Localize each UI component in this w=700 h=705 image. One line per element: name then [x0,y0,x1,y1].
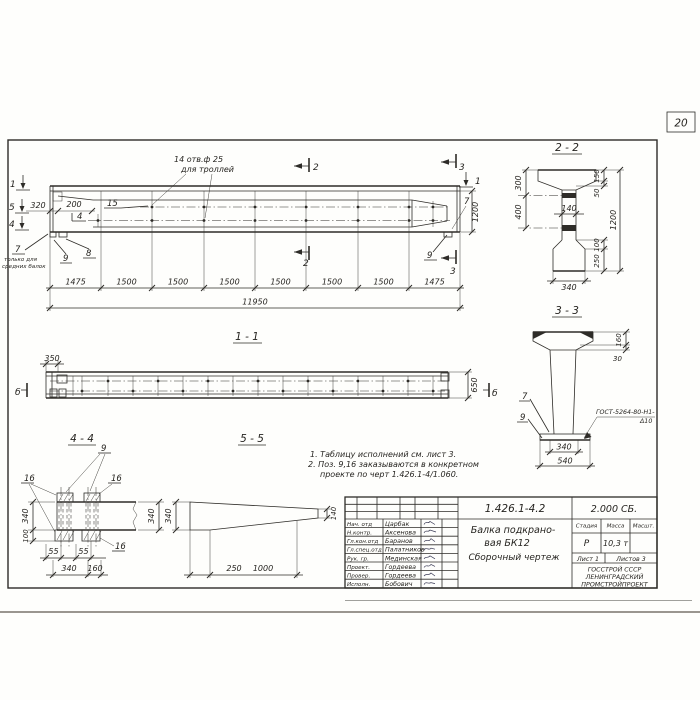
staff-rows: Нач. отд Царбак Н.контр. Аксенова Гл.кон… [347,520,425,588]
dim-160: 160 [87,564,102,573]
notes: 1. Таблицу исполнений см. лист 3. 2. Поз… [308,450,479,479]
staff-role: Рук. гр. [347,556,369,562]
weld-callout-line2: Δ10 [639,418,652,425]
staff-name: Гордеева [385,564,416,571]
drawing-sheet: 20 1475 1500 1500 1500 1500 1500 1500 14… [0,0,700,700]
svg-text:5: 5 [9,203,15,213]
note-line-3: проекте по черт 1.426.1-4/1.060. [320,470,458,479]
cut-mark-b-left: б [15,383,27,398]
dim-540: 540 [557,457,572,466]
staff-role: Н.контр. [347,531,372,537]
view-arrow-1: 1 [10,175,30,190]
cut-mark-2-bottom: 2 [294,246,309,269]
dim-160: 160 [615,333,623,347]
holes-note-line1: 14 отв.ф 25 [174,155,223,164]
dim-100: 100 [593,238,601,252]
svg-text:3: 3 [459,163,465,173]
title-block: 1.426.1-4.2 2.000 СБ. Балка подкрано- ва… [345,497,657,589]
staff-name: Бобович [385,580,413,588]
dim-spacing: 1475 [424,278,444,287]
sheets-total: Листов 3 [615,556,646,563]
pos-label-8: 8 [86,249,92,259]
pos-label-7: 7 [522,392,528,402]
col-mass: Масса [607,524,625,530]
dim-55b: 55 [78,547,88,556]
view-arrow-1-right: 1 [459,172,481,187]
section-4-4: 4 - 4 9 16 16 16 340 100 340 55 55 340 1… [21,433,164,578]
section-5-5-title: 5 - 5 [240,433,264,445]
org-line2: ЛЕНИНГРАДСКИЙ [585,572,644,581]
pos-label-9: 9 [63,254,68,264]
dim-spacing: 1500 [270,278,290,287]
cut-mark-3-top: 3 [441,154,465,173]
cut-mark-3-bottom: 3 [441,250,456,277]
pos-label-16-right: 16 [111,474,122,484]
section-4-4-title: 4 - 4 [70,433,94,445]
product-title-line3: Сборочный чертеж [468,553,560,563]
pos-label-7-right: 7 [464,197,470,207]
svg-text:2: 2 [303,259,309,269]
staff-name: Мединская [385,555,422,562]
dim-250: 250 [593,254,601,268]
section-2-2-title: 2 - 2 [555,142,579,154]
dim-30: 30 [613,355,622,363]
staff-name: Гордеева [385,573,416,580]
pos-label-16-left: 16 [24,474,35,484]
note-line-1: 1. Таблицу исполнений см. лист 3. [310,450,456,459]
svg-text:б: б [492,389,498,399]
svg-text:4: 4 [9,220,15,230]
dim-140: 140 [330,506,338,520]
weld-callout-line1: ГОСТ-5264-80-Н1- [596,409,655,416]
note-line-2: 2. Поз. 9,16 заказываются в конкретном [308,460,479,469]
stage-value: Р [584,539,590,549]
svg-text:2: 2 [313,163,319,173]
svg-text:1: 1 [475,177,481,187]
pos-label-15: 15 [107,199,118,209]
dim-340-right: 340 [147,508,156,523]
main-elevation: 1475 1500 1500 1500 1500 1500 1500 1475 … [2,154,481,311]
doc-number: 1.426.1-4.2 [485,503,546,515]
page-number-box: 20 [667,112,695,132]
dim-140: 140 [561,204,576,213]
dim-spacing: 1500 [116,278,136,287]
section-3-3: 3 - 3 160 30 7 9 ГОСТ-5264-80-Н1- Δ10 34… [517,305,655,469]
col-scale: Масшт. [633,524,655,530]
staff-role: Гл.кон.отд [347,539,378,545]
view-1-1: 1 - 1 350 650 б б [15,331,498,401]
holes-note-line2: для троллей [180,165,234,174]
pos-label-9-right: 9 [427,251,432,261]
staff-role: Провер. [347,574,370,580]
dim-350: 350 [44,354,59,363]
dim-250: 250 [226,564,241,573]
dim-total-length: 11950 [242,298,267,307]
dim-1200: 1200 [609,210,618,230]
dim-spacing: 1500 [219,278,239,287]
dim-150: 150 [593,169,601,183]
pos-label-4: 4 [77,212,82,222]
dim-340: 340 [556,443,571,452]
mass-value: 10,3 т [603,539,628,548]
drawing-canvas: 20 1475 1500 1500 1500 1500 1500 1500 14… [0,0,700,700]
staff-role: Проект. [347,565,370,571]
dim-400: 400 [514,204,523,219]
dim-100: 100 [22,529,30,543]
dim-650: 650 [470,377,479,392]
view-arrow-4: 4 [9,216,29,230]
dim-1000: 1000 [253,564,273,573]
dim-50: 50 [593,188,601,197]
doc-code: 2.000 СБ. [591,504,637,515]
cut-mark-2-top: 2 [294,158,319,173]
dim-320: 320 [30,201,45,210]
product-title-line2: вая БК12 [484,538,530,549]
dim-55a: 55 [48,547,58,556]
cut-mark-b-right: б [483,383,498,399]
staff-name: Царбак [385,520,409,528]
dim-spacing: 1500 [322,278,342,287]
staff-name: Баранов [385,538,413,545]
dim-300: 300 [514,175,523,190]
pos-label-9: 9 [101,444,106,454]
dim-height-1200: 1200 [471,202,480,222]
dim-spacing: 1475 [65,278,85,287]
dim-340-left: 340 [21,508,30,523]
staff-name: Аксенова [384,530,416,537]
dim-340-bottom: 340 [61,564,76,573]
page-number: 20 [674,118,688,130]
svg-text:б: б [15,388,21,398]
staff-name: Палатников [385,547,425,554]
dim-spacing: 1500 [168,278,188,287]
section-3-3-title: 3 - 3 [555,305,579,317]
pos-label-16-bottom: 16 [115,542,126,552]
product-title-line1: Балка подкрано- [471,525,556,536]
dim-spacing: 1500 [373,278,393,287]
dim-340: 340 [561,283,576,292]
staff-role: Гл.спец.отд [347,548,382,554]
org-line3: ПРОМСТРОЙПРОЕКТ [581,580,649,589]
dim-340: 340 [164,508,173,523]
org-line1: ГОССТРОЙ СССР [588,565,642,574]
view-1-1-title: 1 - 1 [235,331,259,343]
only-note-line1: только для [4,257,38,263]
staff-role: Исполн. [347,582,371,588]
svg-text:3: 3 [450,267,456,277]
dim-200: 200 [66,200,81,209]
section-2-2: 2 - 2 300 400 150 50 100 250 1200 140 34… [514,142,624,292]
pos-label-7: 7 [15,245,21,255]
sheet-number: Лист 1 [576,556,599,563]
col-stage: Стадия [576,524,598,530]
pos-label-9: 9 [520,413,525,423]
staff-role: Нач. отд [347,522,372,528]
svg-text:1: 1 [10,180,16,190]
only-note-line2: средних балок [2,264,46,270]
